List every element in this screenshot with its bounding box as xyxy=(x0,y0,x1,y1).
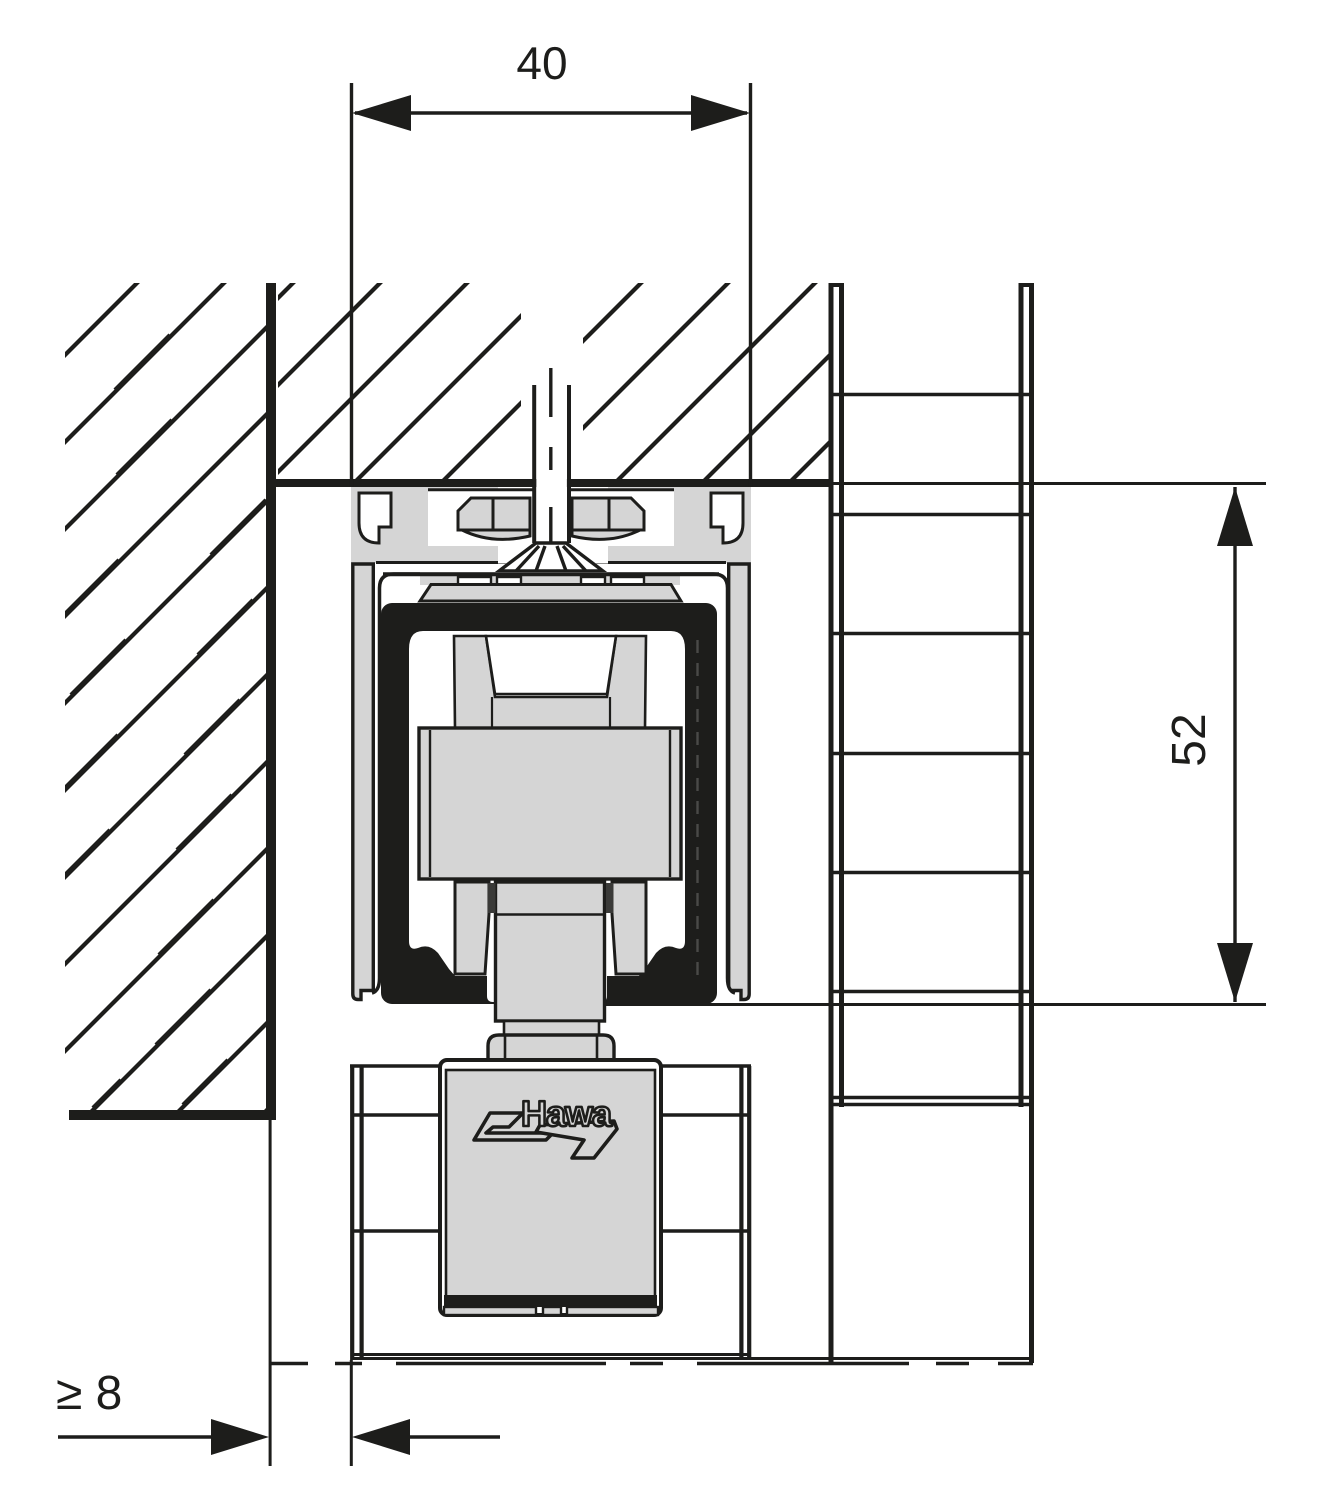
svg-text:52: 52 xyxy=(1163,713,1216,766)
svg-text:Hawa: Hawa xyxy=(521,1093,613,1134)
svg-text:40: 40 xyxy=(516,37,567,89)
svg-text:≥ 8: ≥ 8 xyxy=(56,1367,122,1420)
